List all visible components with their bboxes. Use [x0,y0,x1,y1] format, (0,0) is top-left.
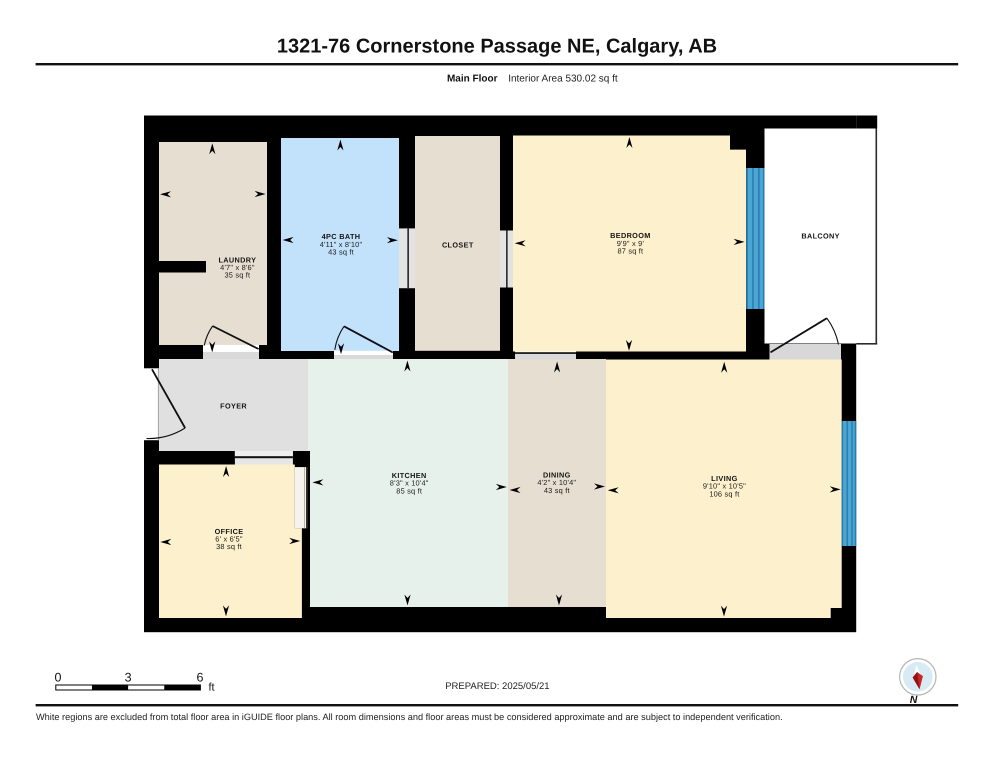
svg-text:Interior Area 530.02 sq ft: Interior Area 530.02 sq ft [508,73,618,84]
svg-text:0: 0 [55,671,62,685]
svg-text:85 sq ft: 85 sq ft [396,486,422,495]
svg-text:35 sq ft: 35 sq ft [224,271,250,280]
svg-text:38 sq ft: 38 sq ft [216,542,242,551]
svg-text:CLOSET: CLOSET [442,241,474,250]
svg-text:87 sq ft: 87 sq ft [617,247,643,256]
svg-text:1321-76 Cornerstone Passage NE: 1321-76 Cornerstone Passage NE, Calgary,… [277,36,717,58]
svg-text:Main Floor: Main Floor [447,73,498,84]
svg-text:43 sq ft: 43 sq ft [544,486,570,495]
svg-text:43 sq ft: 43 sq ft [328,248,354,257]
svg-text:White regions are excluded fro: White regions are excluded from total fl… [36,712,783,722]
svg-text:FOYER: FOYER [220,402,247,411]
svg-text:PREPARED: 2025/05/21: PREPARED: 2025/05/21 [445,681,549,692]
svg-text:ft: ft [209,682,215,694]
svg-text:3: 3 [125,671,132,685]
svg-text:106 sq ft: 106 sq ft [709,489,739,498]
svg-text:6: 6 [197,671,204,685]
svg-text:BALCONY: BALCONY [801,232,840,241]
